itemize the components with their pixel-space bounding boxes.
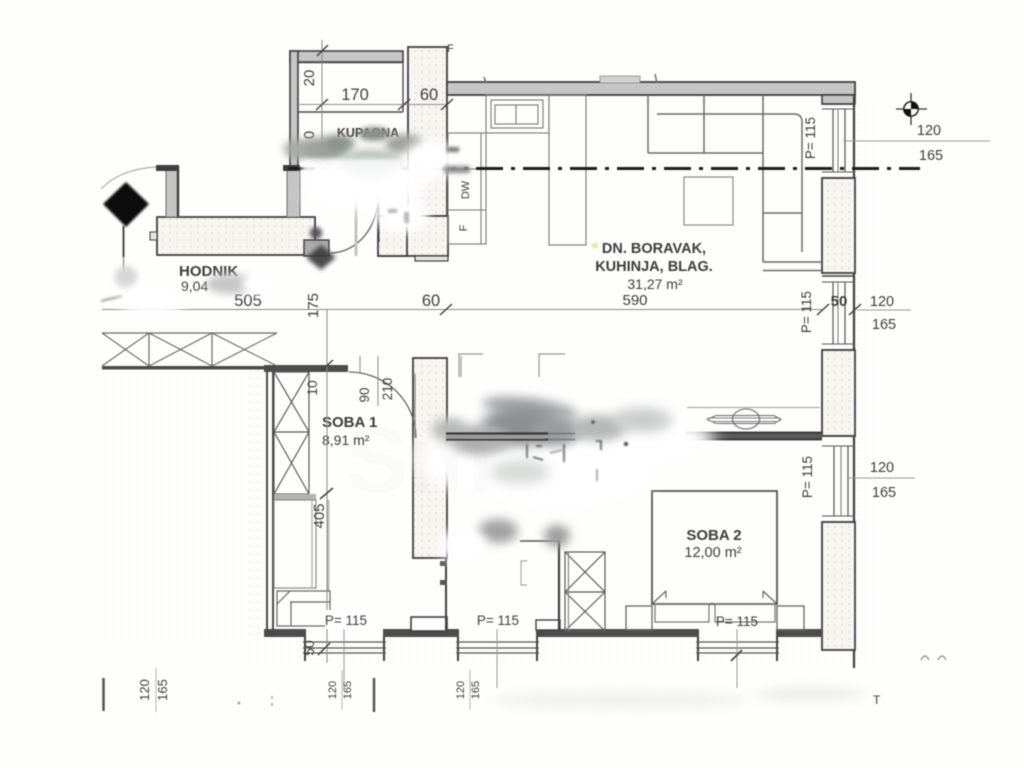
svg-text:12,00 m²: 12,00 m² <box>684 545 741 561</box>
svg-text:P= 115: P= 115 <box>477 613 519 628</box>
svg-text:9,04: 9,04 <box>181 278 208 294</box>
svg-text:90: 90 <box>357 387 372 402</box>
svg-text:60: 60 <box>420 86 438 104</box>
svg-text:10: 10 <box>304 380 320 396</box>
svg-text:DW: DW <box>460 180 472 199</box>
svg-text:20: 20 <box>301 70 318 87</box>
svg-text:P= 115: P= 115 <box>800 456 815 498</box>
svg-text:120: 120 <box>327 681 339 699</box>
svg-text:165: 165 <box>872 317 896 333</box>
svg-text:P= 115: P= 115 <box>325 613 367 628</box>
svg-text:F: F <box>447 43 454 55</box>
svg-text:SOBA 2: SOBA 2 <box>686 527 741 544</box>
svg-text:60: 60 <box>422 292 440 310</box>
svg-text:F: F <box>458 224 470 231</box>
svg-text:165: 165 <box>470 681 482 699</box>
svg-text:DN. BORAVAK,: DN. BORAVAK, <box>602 241 706 257</box>
svg-text:165: 165 <box>155 679 170 701</box>
svg-text:165: 165 <box>872 485 896 501</box>
svg-text:165: 165 <box>342 681 354 699</box>
svg-text:405: 405 <box>311 503 328 528</box>
svg-text:P= 115: P= 115 <box>716 614 758 629</box>
svg-text:50: 50 <box>301 640 317 656</box>
svg-text:170: 170 <box>341 86 369 104</box>
svg-text:KUHINJA, BLAG.: KUHINJA, BLAG. <box>595 259 713 275</box>
svg-text:120: 120 <box>137 679 152 701</box>
svg-text:165: 165 <box>919 148 943 164</box>
svg-text:120: 120 <box>870 294 894 310</box>
svg-text:120: 120 <box>455 681 467 699</box>
svg-text:120: 120 <box>917 123 941 139</box>
svg-text:T: T <box>873 693 881 707</box>
svg-text:Sm: Sm <box>345 407 493 513</box>
svg-text:31,27 m²: 31,27 m² <box>627 276 683 292</box>
svg-text:210: 210 <box>380 378 395 401</box>
svg-text:P= 115: P= 115 <box>799 291 814 333</box>
svg-text:50: 50 <box>831 293 848 310</box>
svg-text:120: 120 <box>870 460 894 476</box>
svg-text:590: 590 <box>622 292 647 309</box>
svg-text:P= 115: P= 115 <box>803 117 818 159</box>
svg-text:175: 175 <box>305 293 322 318</box>
